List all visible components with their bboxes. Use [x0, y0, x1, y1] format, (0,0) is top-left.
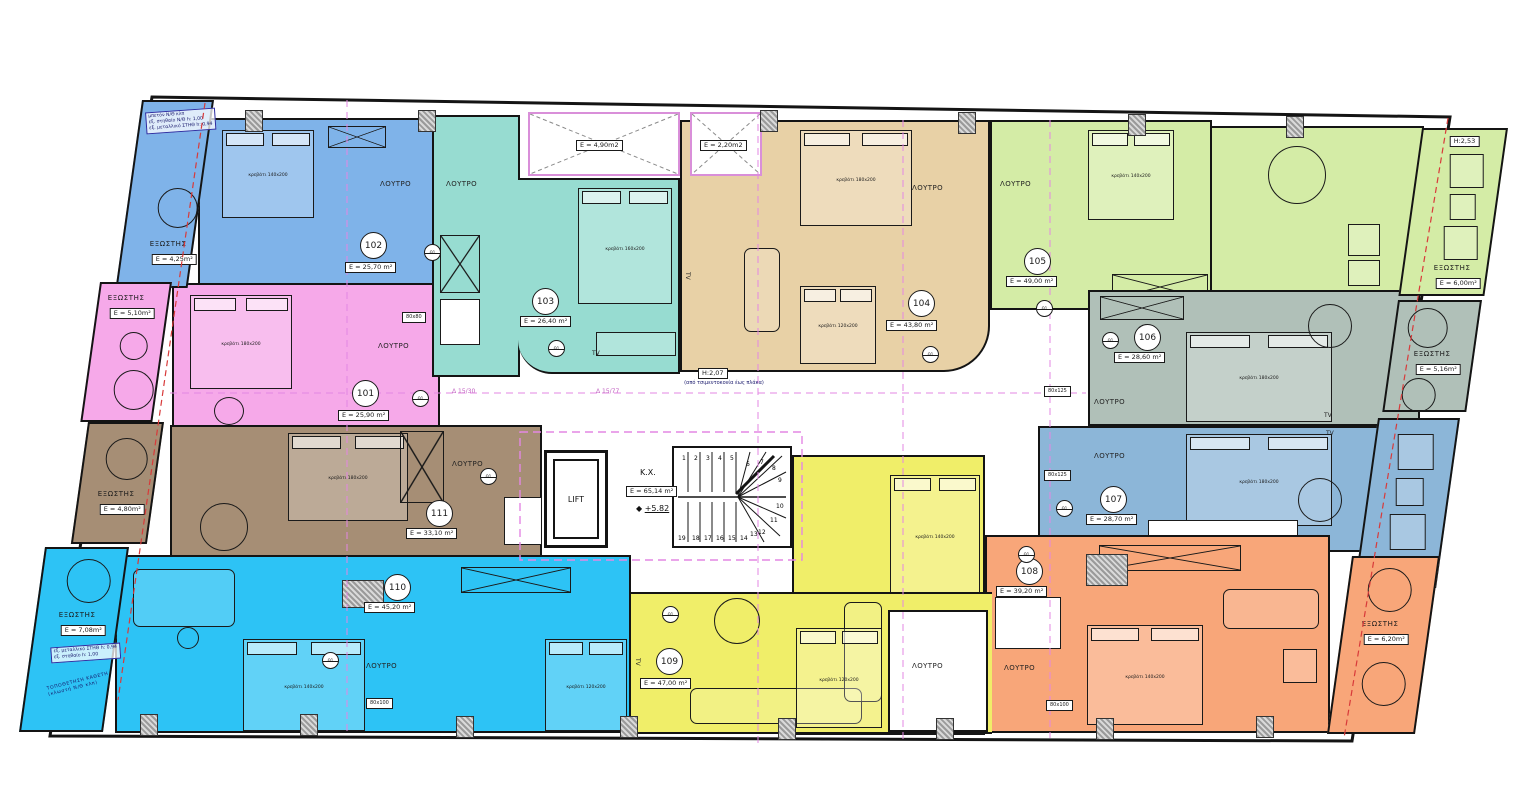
wall-pier: [300, 714, 318, 736]
wardrobe: [328, 126, 386, 148]
room-number-111: 111: [426, 500, 453, 527]
svg-text:15: 15: [728, 535, 736, 542]
armchair: [1348, 224, 1380, 256]
door-tag: Θ1: [1036, 300, 1053, 317]
balcony-chair: [1362, 662, 1406, 706]
wall-pier: [778, 718, 796, 740]
bath-label-105: ΛΟΥΤΡΟ: [1000, 180, 1031, 188]
balcony-chair: [1368, 568, 1412, 612]
bed-size-label: κρεβάτι 140x200: [244, 685, 364, 690]
shaft-area: E = 2,20m2: [700, 140, 747, 151]
round-table: [714, 598, 760, 644]
tv-label-104: TV: [684, 272, 691, 280]
wall-pier: [1128, 114, 1146, 136]
balcony-area: E = 6,00m²: [1436, 278, 1481, 289]
balcony-label: ΕΞΩΣΤΗΣ: [1362, 620, 1399, 628]
svg-text:9: 9: [778, 477, 782, 484]
dimension-label: Δ 15/77: [596, 388, 619, 395]
bed-size-label: κρεβάτι 180x200: [801, 178, 911, 183]
bath-label-110: ΛΟΥΤΡΟ: [366, 662, 397, 670]
svg-text:13: 13: [750, 531, 758, 538]
corridor-height: H:2,07: [698, 368, 728, 379]
room-area-103: E = 26,40 m²: [520, 316, 571, 327]
balcony-area: E = 5,16m²: [1416, 364, 1461, 375]
light-shaft-1: E = 4,90m2: [528, 112, 680, 176]
door-tag: Θ1: [1102, 332, 1119, 349]
balcony-label: ΕΞΩΣΤΗΣ: [1414, 350, 1451, 358]
wall-pier: [1096, 718, 1114, 740]
door-tag: Θ1: [1056, 500, 1073, 517]
armchair: [1283, 649, 1317, 683]
balcony-armchair: [1450, 154, 1484, 188]
bed: κρεβάτι 140x200: [1088, 130, 1174, 220]
room-number-104: 104: [908, 290, 935, 317]
balcony-label: ΕΞΩΣΤΗΣ: [150, 240, 187, 248]
balcony-chair: [67, 559, 111, 603]
room-area-105: E = 49,00 m²: [1006, 276, 1057, 287]
bed-size-label: κρεβάτι 180x200: [1187, 376, 1331, 381]
room-number-102: 102: [360, 232, 387, 259]
bath-label-107: ΛΟΥΤΡΟ: [1094, 452, 1125, 460]
bed: κρεβάτι 140x200: [890, 475, 980, 593]
tv-label-107: TV: [1326, 430, 1334, 437]
wall-pier: [418, 110, 436, 132]
kitchen-counter: [440, 299, 480, 345]
svg-text:8: 8: [772, 465, 776, 472]
bath-label-106: ΛΟΥΤΡΟ: [1094, 398, 1125, 406]
bed: κρεβάτι 140x200: [222, 130, 314, 218]
svg-text:17: 17: [704, 535, 712, 542]
tv-label-103: TV: [592, 350, 600, 357]
balcony-chair: [114, 370, 154, 410]
bath-label-101: ΛΟΥΤΡΟ: [378, 342, 409, 350]
hall-area: E = 65,14 m²: [626, 486, 677, 497]
bed: κρεβάτι 180x200: [190, 295, 292, 389]
sofa: [744, 248, 780, 332]
kitchen-counter: [995, 597, 1061, 649]
balcony-chair: [1402, 378, 1436, 412]
balcony-armchair: [1444, 226, 1478, 260]
balcony-armchair: [1390, 514, 1426, 550]
lift-shaft: LIFT: [544, 450, 608, 548]
balcony-armchair: [1398, 434, 1434, 470]
kitchen-counter: [504, 497, 542, 545]
tv-bench: [596, 332, 676, 356]
balcony-chair: [1408, 308, 1448, 348]
shower-size: 80x100: [1046, 700, 1073, 711]
door-tag: Θ1: [424, 244, 441, 261]
corridor-height-sub: (από τσιμεντοκονία έως πλάκα): [664, 380, 784, 386]
bed-2: κρεβάτι 120x200: [545, 639, 627, 731]
room-number-105: 105: [1024, 248, 1051, 275]
bath-label-104: ΛΟΥΤΡΟ: [912, 184, 943, 192]
svg-text:10: 10: [776, 503, 784, 510]
room-area-102: E = 25,70 m²: [345, 262, 396, 273]
svg-text:6: 6: [746, 461, 750, 468]
wall-pier: [958, 112, 976, 134]
bed-size-label: κρεβάτι 120x200: [546, 685, 626, 690]
svg-text:16: 16: [716, 535, 724, 542]
svg-text:2: 2: [694, 455, 698, 462]
balcony-brown: ΕΞΩΣΤΗΣ E = 4,80m²: [71, 422, 164, 544]
room-101: κρεβάτι 180x200: [172, 283, 440, 431]
room-103-bath: [432, 115, 520, 377]
room-number-101: 101: [352, 380, 379, 407]
bed-size-label: κρεβάτι 140x200: [223, 173, 313, 178]
corner-sofa: [133, 569, 235, 627]
balcony-table: [1450, 194, 1476, 220]
bed-size-label: κρεβάτι 120x200: [801, 324, 875, 329]
room-111: κρεβάτι 180x200: [170, 425, 542, 557]
room-103: κρεβάτι 160x200: [518, 178, 680, 374]
room-number-103: 103: [532, 288, 559, 315]
bed: κρεβάτι 180x200: [800, 130, 912, 226]
bed-size-label: κρεβάτι 160x200: [579, 247, 671, 252]
room-area-104: E = 43,80 m²: [886, 320, 937, 331]
level-value: +5.82: [645, 504, 670, 513]
level-marker: ◆ +5.82: [636, 504, 669, 513]
balcony-height: H:2,53: [1450, 136, 1480, 147]
parapet-note: ΤΟΠΟΘΕΤΗΣΗ ΚΑΘΕΤΗ (κλωστή Ν/Θ κλπ): [46, 668, 127, 699]
svg-text:19: 19: [678, 535, 686, 542]
bath-label-103: ΛΟΥΤΡΟ: [446, 180, 477, 188]
bed-size-label: κρεβάτι 180x200: [289, 476, 407, 481]
wall-pier: [1256, 716, 1274, 738]
room-area-106: E = 28,60 m²: [1114, 352, 1165, 363]
wardrobe: [1100, 296, 1184, 320]
hall-label: K.X.: [640, 468, 656, 477]
room-area-101: E = 25,90 m²: [338, 410, 389, 421]
room-area-108: E = 39,20 m²: [996, 586, 1047, 597]
bed-size-label: κρεβάτι 180x200: [191, 342, 291, 347]
balcony-label: ΕΞΩΣΤΗΣ: [98, 490, 135, 498]
lift-label: LIFT: [568, 495, 584, 504]
door-tag: Θ1: [322, 652, 339, 669]
room-number-109: 109: [656, 648, 683, 675]
room-area-111: E = 33,10 m²: [406, 528, 457, 539]
shower-size: 80x125: [1044, 386, 1071, 397]
svg-text:3: 3: [706, 455, 710, 462]
room-107: κρεβάτι 180x200: [1038, 426, 1390, 552]
bed-2: κρεβάτι 120x200: [796, 628, 882, 728]
sofa: [1223, 589, 1319, 629]
room-105-living: [1212, 126, 1424, 294]
door-tag: Θ1: [480, 468, 497, 485]
balcony-table: [1396, 478, 1424, 506]
room-number-107: 107: [1100, 486, 1127, 513]
balcony-label: ΕΞΩΣΤΗΣ: [59, 611, 96, 619]
balcony-area: E = 4,25m²: [152, 254, 197, 265]
wall-pier: [1286, 116, 1304, 138]
balcony-table: [120, 332, 148, 360]
bed-size-label: κρεβάτι 140x200: [891, 535, 979, 540]
bath-label-109: ΛΟΥΤΡΟ: [912, 662, 943, 670]
svg-text:12: 12: [758, 529, 766, 536]
svg-text:4: 4: [718, 455, 722, 462]
wall-pier: [140, 714, 158, 736]
svg-text:11: 11: [770, 517, 778, 524]
balcony-chair: [158, 188, 198, 228]
shower-size: 80x100: [366, 698, 393, 709]
bed: κρεβάτι 140x200: [1087, 625, 1203, 725]
floor-plan: κρεβάτι 140x200 102 E = 25,70 m² ΛΟΥΤΡΟ …: [0, 0, 1536, 790]
dimension-label: Δ 15/30: [452, 388, 475, 395]
bath-label-111: ΛΟΥΤΡΟ: [452, 460, 483, 468]
svg-text:5: 5: [730, 455, 734, 462]
balcony-gray: ΕΞΩΣΤΗΣ E = 5,16m²: [1382, 300, 1482, 412]
round-stool: [177, 627, 199, 649]
balcony-area: E = 4,80m²: [100, 504, 145, 515]
closet: [400, 431, 444, 503]
bed: κρεβάτι 160x200: [578, 188, 672, 304]
balcony-area: E = 6,20m²: [1364, 634, 1409, 645]
bath-label-108: ΛΟΥΤΡΟ: [1004, 664, 1035, 672]
shower-size: 80x125: [1044, 470, 1071, 481]
door-tag: Θ1: [1018, 546, 1035, 563]
balcony-label: ΕΞΩΣΤΗΣ: [108, 294, 145, 302]
level-diamond-icon: ◆: [636, 504, 642, 513]
armchair: [1348, 260, 1380, 286]
wall-pier: [456, 716, 474, 738]
wall-pier: [620, 716, 638, 738]
armchair: [1298, 478, 1342, 522]
room-109-bath: [888, 610, 988, 732]
bath-label-102: ΛΟΥΤΡΟ: [380, 180, 411, 188]
bed: κρεβάτι 180x200: [1186, 332, 1332, 422]
bed: κρεβάτι 180x200: [288, 433, 408, 521]
room-number-106: 106: [1134, 324, 1161, 351]
shaft-area: E = 4,90m2: [576, 140, 623, 151]
tv-label-109: TV: [634, 658, 641, 666]
balcony-area: E = 5,10m²: [110, 308, 155, 319]
door-tag: Θ1: [412, 390, 429, 407]
bed-2: κρεβάτι 120x200: [800, 286, 876, 364]
room-area-107: E = 28,70 m²: [1086, 514, 1137, 525]
armchair: [214, 397, 244, 425]
wardrobe: [461, 567, 571, 593]
room-area-109: E = 47,00 m²: [640, 678, 691, 689]
balcony-label: ΕΞΩΣΤΗΣ: [1434, 264, 1471, 272]
round-table: [1268, 146, 1326, 204]
balcony-chair: [106, 438, 148, 480]
closet: [440, 235, 480, 293]
door-tag: Θ1: [922, 346, 939, 363]
bed-size-label: κρεβάτι 140x200: [1088, 675, 1202, 680]
wall-pier: [1086, 554, 1128, 586]
tv-label-106: TV: [1324, 412, 1332, 419]
round-chair: [200, 503, 248, 551]
svg-text:1: 1: [682, 455, 686, 462]
shower-size: 80x80: [402, 312, 426, 323]
bed-size-label: κρεβάτι 120x200: [797, 678, 881, 683]
wall-pier: [760, 110, 778, 132]
balcony-area: E = 7,08m²: [61, 625, 106, 636]
room-102: κρεβάτι 140x200: [198, 118, 458, 286]
room-number-110: 110: [384, 574, 411, 601]
door-tag: Θ1: [548, 340, 565, 357]
light-shaft-2: E = 2,20m2: [690, 112, 762, 176]
wall-pier: [245, 110, 263, 132]
staircase: 1 2 3 4 5 6 7 8 9 10 11 12 19 18 17 16 1…: [672, 446, 792, 548]
armchair: [1308, 304, 1352, 348]
svg-text:7: 7: [760, 459, 764, 466]
door-tag: Θ1: [662, 606, 679, 623]
wall-pier: [936, 718, 954, 740]
bed-size-label: κρεβάτι 140x200: [1089, 174, 1173, 179]
room-area-110: E = 45,20 m²: [364, 602, 415, 613]
svg-text:14: 14: [740, 535, 748, 542]
svg-text:18: 18: [692, 535, 700, 542]
